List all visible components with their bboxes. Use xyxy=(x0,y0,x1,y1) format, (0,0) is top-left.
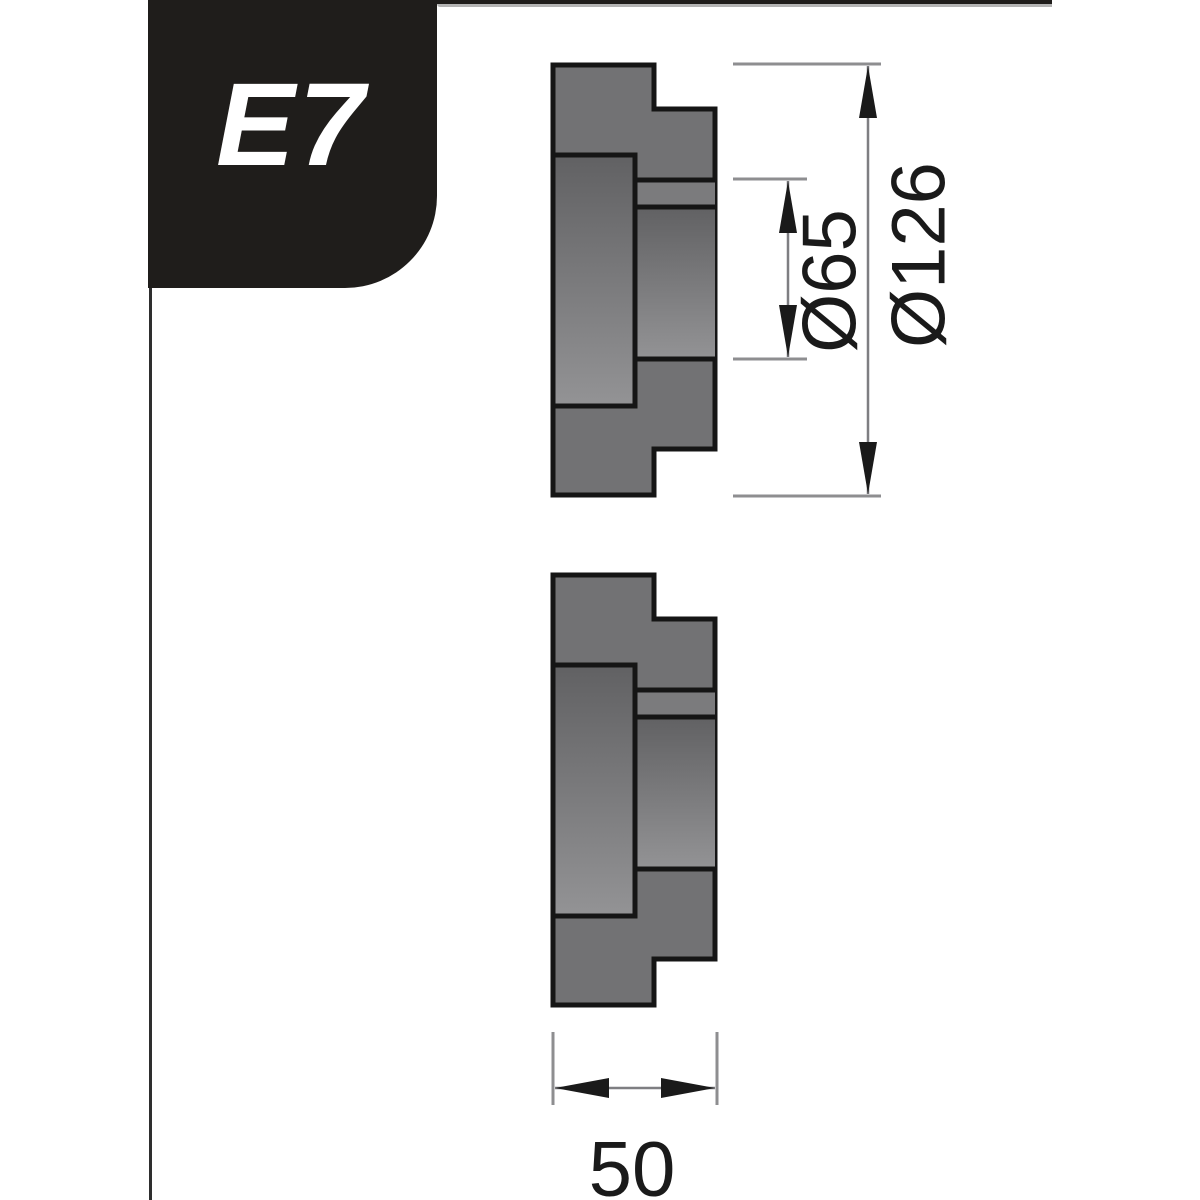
arrow-down-icon xyxy=(859,442,877,494)
arrow-right-icon xyxy=(661,1078,715,1098)
catalog-page: E7 xyxy=(0,0,1200,1200)
roller-cross-section-top xyxy=(553,65,715,495)
dimension-label-bore-diameter: Ø65 xyxy=(788,209,873,353)
technical-drawing: Ø126 Ø65 50 xyxy=(0,0,1200,1200)
roller-cross-section-bottom xyxy=(553,575,715,1005)
arrow-left-icon xyxy=(555,1078,609,1098)
dimension-label-outer-diameter: Ø126 xyxy=(877,162,962,348)
arrow-up-icon xyxy=(859,66,877,118)
dimension-label-width: 50 xyxy=(589,1124,676,1200)
